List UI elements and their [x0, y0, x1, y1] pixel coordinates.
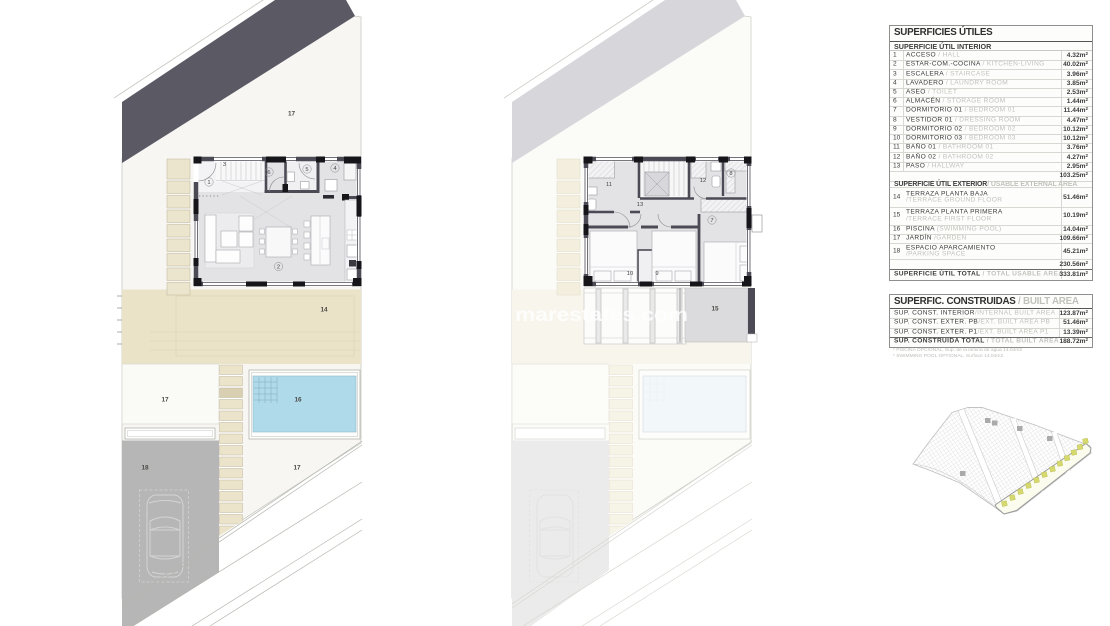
svg-text:18: 18	[141, 465, 149, 472]
svg-text:12: 12	[700, 178, 706, 184]
svg-text:1: 1	[207, 180, 210, 186]
svg-text:11: 11	[606, 182, 612, 188]
svg-text:9: 9	[655, 271, 658, 277]
svg-text:3: 3	[223, 162, 226, 168]
svg-text:17: 17	[293, 465, 301, 472]
svg-text:8: 8	[729, 171, 732, 177]
svg-text:7: 7	[710, 218, 713, 224]
svg-text:14: 14	[320, 307, 328, 314]
svg-text:17: 17	[161, 397, 169, 404]
svg-text:2: 2	[277, 265, 280, 271]
svg-text:5: 5	[305, 167, 308, 173]
svg-text:16: 16	[294, 397, 302, 404]
svg-text:13: 13	[637, 202, 643, 208]
svg-text:17: 17	[288, 111, 296, 118]
svg-text:10: 10	[627, 271, 633, 277]
svg-text:15: 15	[711, 306, 719, 313]
svg-text:marestates.com: marestates.com	[515, 305, 688, 326]
svg-text:6: 6	[267, 170, 270, 176]
